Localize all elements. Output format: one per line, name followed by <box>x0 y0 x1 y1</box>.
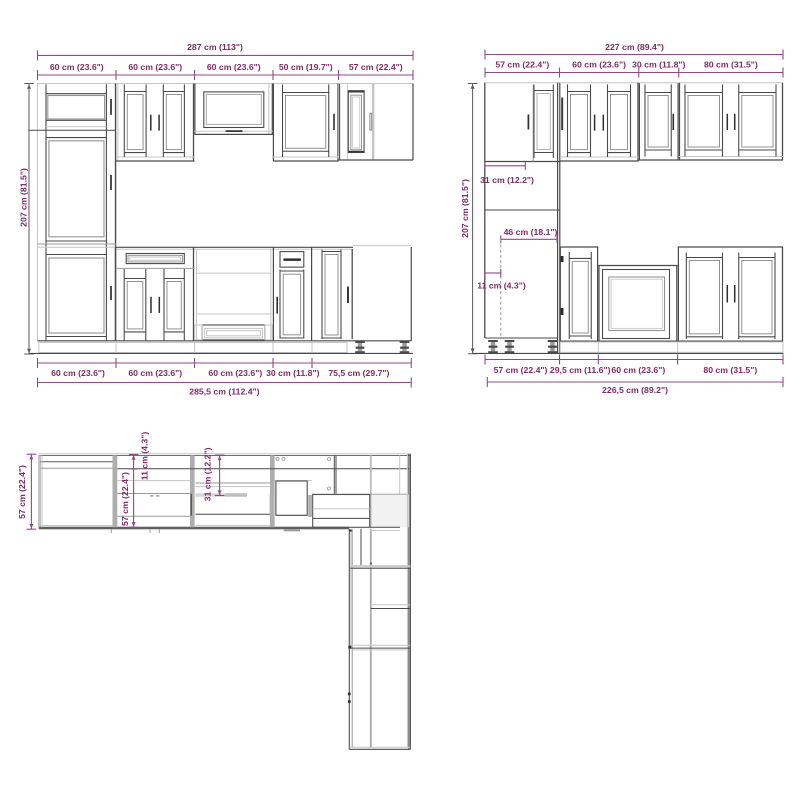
svg-text:11 cm (4.3"): 11 cm (4.3") <box>139 432 149 481</box>
svg-text:226,5 cm (89.2"): 226,5 cm (89.2") <box>602 385 668 395</box>
svg-text:60 cm (23.6"): 60 cm (23.6") <box>207 62 261 72</box>
svg-text:60 cm (23.6"): 60 cm (23.6") <box>128 368 182 378</box>
svg-text:57 cm (22.4"): 57 cm (22.4") <box>17 465 27 519</box>
svg-text:207 cm (81.5"): 207 cm (81.5") <box>460 179 470 238</box>
svg-text:60 cm (23.6"): 60 cm (23.6") <box>208 368 262 378</box>
svg-text:285,5 cm (112.4"): 285,5 cm (112.4") <box>189 387 259 397</box>
svg-text:60 cm (23.6"): 60 cm (23.6") <box>128 62 182 72</box>
svg-text:11 cm (4.3"): 11 cm (4.3") <box>477 281 526 291</box>
svg-text:30 cm (11.8"): 30 cm (11.8") <box>266 368 319 378</box>
svg-text:60 cm (23.6"): 60 cm (23.6") <box>51 368 105 378</box>
svg-text:80 cm (31.5"): 80 cm (31.5") <box>704 59 758 69</box>
svg-text:31 cm (12.2"): 31 cm (12.2") <box>202 447 212 501</box>
svg-text:287 cm (113"): 287 cm (113") <box>187 42 243 52</box>
svg-text:57 cm (22.4"): 57 cm (22.4") <box>120 472 130 526</box>
svg-text:31 cm (12.2"): 31 cm (12.2") <box>480 175 534 185</box>
svg-text:57 cm (22.4"): 57 cm (22.4") <box>494 365 548 375</box>
svg-text:227 cm (89.4"): 227 cm (89.4") <box>605 42 664 52</box>
svg-text:57 cm (22.4"): 57 cm (22.4") <box>349 62 403 72</box>
svg-text:57 cm (22.4"): 57 cm (22.4") <box>495 59 549 69</box>
svg-text:207 cm (81.5"): 207 cm (81.5") <box>18 168 28 227</box>
svg-text:50 cm (19.7"): 50 cm (19.7") <box>279 62 333 72</box>
svg-text:60 cm (23.6"): 60 cm (23.6") <box>572 59 626 69</box>
svg-text:29,5 cm (11.6"): 29,5 cm (11.6") <box>550 365 611 375</box>
svg-text:46 cm (18.1"): 46 cm (18.1") <box>504 227 558 237</box>
svg-text:80 cm (31.5"): 80 cm (31.5") <box>703 365 757 375</box>
svg-text:75,5 cm (29.7"): 75,5 cm (29.7") <box>328 368 389 378</box>
svg-text:30 cm (11.8"): 30 cm (11.8") <box>632 59 685 69</box>
svg-text:60 cm (23.6"): 60 cm (23.6") <box>611 365 665 375</box>
svg-text:60 cm (23.6"): 60 cm (23.6") <box>50 62 104 72</box>
